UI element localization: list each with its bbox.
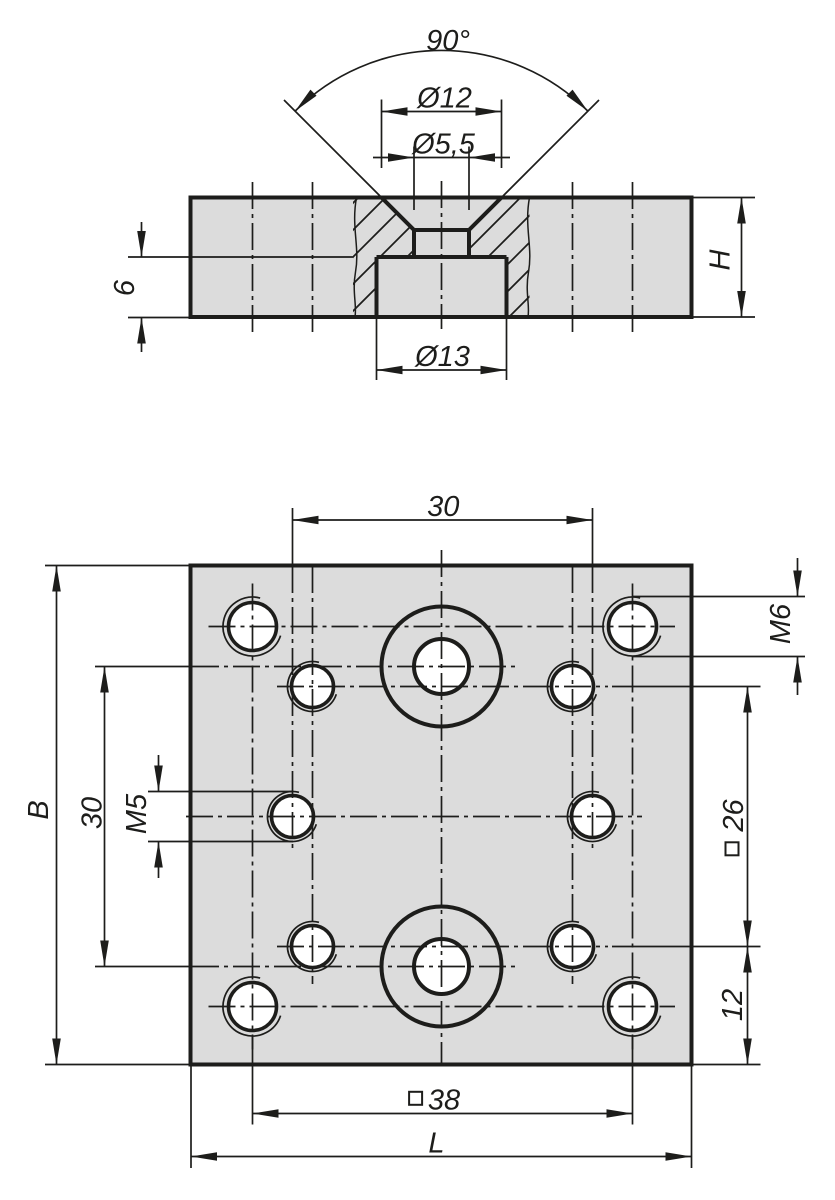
- svg-text:H: H: [705, 249, 737, 270]
- svg-text:B: B: [23, 800, 55, 819]
- svg-text:L: L: [428, 1128, 444, 1160]
- svg-text:12: 12: [717, 989, 749, 1021]
- svg-text:90°: 90°: [426, 25, 470, 57]
- svg-text:Ø13: Ø13: [414, 341, 470, 373]
- svg-text:26: 26: [718, 799, 750, 833]
- svg-text:M5: M5: [121, 793, 153, 834]
- svg-text:Ø12: Ø12: [416, 83, 472, 115]
- svg-text:Ø5,5: Ø5,5: [411, 129, 476, 161]
- svg-text:M6: M6: [765, 603, 797, 644]
- svg-text:30: 30: [427, 491, 459, 523]
- svg-text:38: 38: [428, 1085, 460, 1117]
- svg-text:30: 30: [77, 797, 109, 829]
- svg-text:6: 6: [109, 279, 141, 296]
